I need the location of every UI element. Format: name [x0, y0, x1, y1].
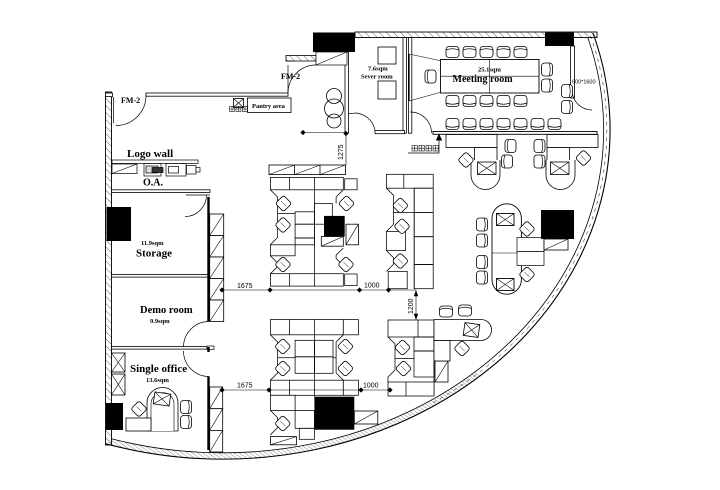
svg-text:1675: 1675	[237, 283, 253, 290]
svg-text:7.6sqm: 7.6sqm	[368, 66, 388, 73]
svg-text:Single office: Single office	[130, 363, 187, 375]
svg-text:Pantry area: Pantry area	[252, 103, 286, 110]
svg-text:1200: 1200	[408, 298, 415, 314]
svg-text:FM-2: FM-2	[121, 96, 140, 105]
svg-text:Meeting room: Meeting room	[453, 74, 514, 85]
svg-text:600*1600: 600*1600	[572, 80, 596, 86]
svg-text:Logo wall: Logo wall	[127, 148, 173, 160]
svg-text:11.9sqm: 11.9sqm	[141, 240, 164, 247]
svg-text:1675: 1675	[237, 383, 253, 390]
svg-text:FM-2: FM-2	[281, 72, 300, 81]
svg-text:Demo room: Demo room	[140, 305, 193, 316]
svg-text:25.1sqm: 25.1sqm	[478, 67, 502, 74]
svg-text:1000: 1000	[363, 383, 379, 390]
svg-text:O.A.: O.A.	[143, 178, 164, 189]
svg-text:Sever room: Sever room	[361, 74, 393, 81]
svg-text:Storage: Storage	[136, 248, 172, 260]
svg-text:1000: 1000	[364, 283, 380, 290]
svg-text:13.6sqm: 13.6sqm	[146, 377, 170, 384]
svg-text:1275: 1275	[338, 144, 345, 160]
svg-text:9.9sqm: 9.9sqm	[150, 318, 170, 325]
